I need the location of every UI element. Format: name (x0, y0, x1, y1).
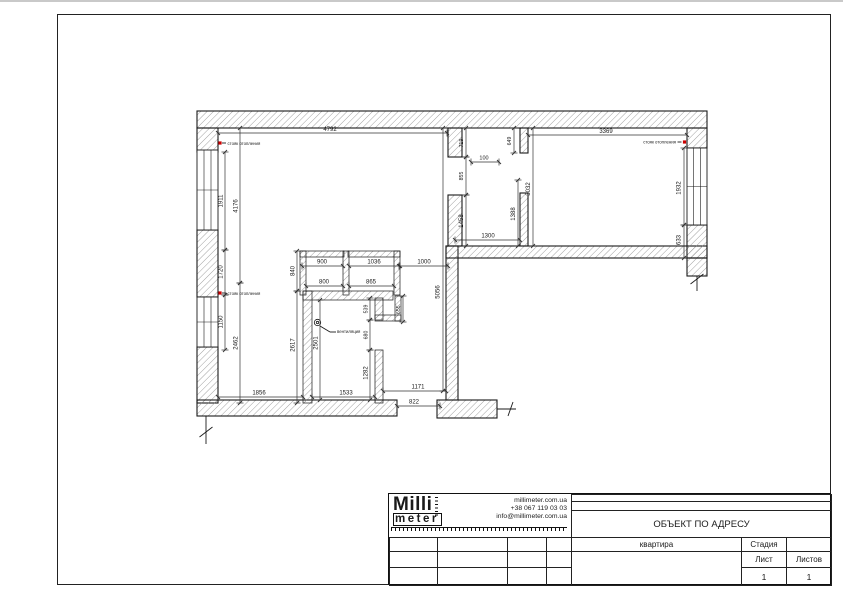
wall (520, 193, 528, 246)
wall (687, 128, 707, 148)
wall (520, 128, 528, 153)
wall (375, 315, 401, 321)
signature-cell (546, 537, 572, 552)
wall (348, 251, 400, 257)
dimension-label: 800 (319, 280, 330, 286)
dimension-label: 2501 (314, 336, 320, 350)
dimension-label: 680 (364, 331, 370, 340)
plan-label: вентиляция (337, 329, 361, 334)
signature-cell (437, 567, 508, 586)
dimension-label: 1856 (252, 391, 266, 397)
sheets-value-cell: 1 (786, 567, 832, 586)
walls-layer (197, 111, 707, 418)
heating-riser-dot (218, 141, 221, 144)
sheet-value-cell: 1 (741, 567, 787, 586)
dimension-label: 822 (409, 400, 420, 406)
subject-cell: квартира (571, 537, 742, 552)
dimension-label: 719 (459, 139, 465, 148)
plan-label: стояк отопления (643, 140, 676, 145)
plan-label: стояк отопления (228, 141, 261, 146)
dimension-label: 4792 (323, 127, 337, 133)
signature-cell (437, 537, 508, 552)
wall (394, 251, 400, 295)
drawing-page: 4792336910013009001036100080086518561533… (0, 0, 843, 597)
dimension-label: 1000 (417, 260, 431, 266)
object-title-cell: ОБЪЕКТ ПО АДРЕСУ (571, 510, 832, 538)
dimension-label: 4176 (234, 199, 240, 213)
stage-label-cell: Стадия (741, 537, 787, 552)
dimension-label: 855 (459, 172, 465, 181)
wall (197, 230, 218, 297)
wall (687, 225, 707, 258)
dimension-label: 840 (291, 265, 297, 276)
dimension-label: 1932 (677, 181, 683, 195)
dimension-label: 100 (479, 156, 488, 162)
dimension-label: 1036 (367, 260, 381, 266)
contact-website: millimeter.com.ua (496, 497, 567, 505)
dimension-label: 3032 (526, 182, 532, 196)
dimension-label: 1720 (219, 265, 225, 279)
wall (437, 400, 497, 418)
dimension-label: 865 (366, 280, 377, 286)
dimension-label: 1533 (339, 391, 353, 397)
signature-cell (389, 567, 438, 586)
plan-label: стояк отопления (228, 291, 261, 296)
signature-cell (389, 551, 438, 568)
dimension-label: 649 (507, 137, 513, 146)
dimension-label: 1388 (511, 207, 517, 221)
company-contacts: millimeter.com.ua +38 067 119 03 03 info… (496, 497, 567, 521)
wall (343, 251, 349, 295)
signature-cell (507, 537, 547, 552)
heating-riser-dot (218, 291, 221, 294)
wall (687, 258, 707, 276)
wall (197, 111, 707, 128)
wall (197, 347, 218, 403)
signature-cell (546, 551, 572, 568)
logo-ruler-icon (391, 527, 567, 534)
signature-cell (507, 567, 547, 586)
dimension-label: 1282 (364, 366, 370, 380)
signature-cell (546, 567, 572, 586)
dimension-label: 5056 (436, 285, 442, 299)
dimension-label: 1171 (412, 385, 426, 391)
heating-riser-dot (683, 140, 686, 143)
sheet-label-cell: Лист (741, 551, 787, 568)
dimension-label: 3369 (599, 129, 613, 135)
wall (197, 128, 218, 152)
dimension-label: 1300 (481, 234, 495, 240)
plan-line (320, 326, 330, 332)
dimension-label: 655. (396, 304, 402, 314)
contact-email: info@millimeter.com.ua (496, 513, 567, 521)
logo-ruler-ticks-icon (435, 497, 438, 518)
logo-cell: Milli meter millimeter.com.ua +38 067 11… (389, 494, 572, 538)
signature-cell (437, 551, 508, 568)
wall (375, 350, 383, 403)
contact-phone: +38 067 119 03 03 (496, 505, 567, 513)
dimension-label: 1458 (459, 214, 465, 228)
dimension-label: 2462 (234, 336, 240, 350)
wall (300, 251, 344, 257)
dimension-label: 633 (677, 234, 683, 245)
title-block: Milli meter millimeter.com.ua +38 067 11… (388, 493, 831, 585)
dimension-label: 1150 (219, 315, 225, 329)
stage-value-cell (786, 537, 832, 552)
wall (303, 291, 312, 403)
signature-cell (389, 537, 438, 552)
vent-symbol (316, 321, 318, 323)
dimension-label: 2617 (291, 338, 297, 352)
dimension-label: 1911 (219, 194, 225, 208)
wall (446, 246, 707, 258)
signature-cell (507, 551, 547, 568)
sheets-label-cell: Листов (786, 551, 832, 568)
dimension-label: 539 (364, 305, 370, 314)
dimension-label: 900 (317, 260, 328, 266)
notes-cell (571, 551, 742, 586)
wall (300, 251, 306, 295)
